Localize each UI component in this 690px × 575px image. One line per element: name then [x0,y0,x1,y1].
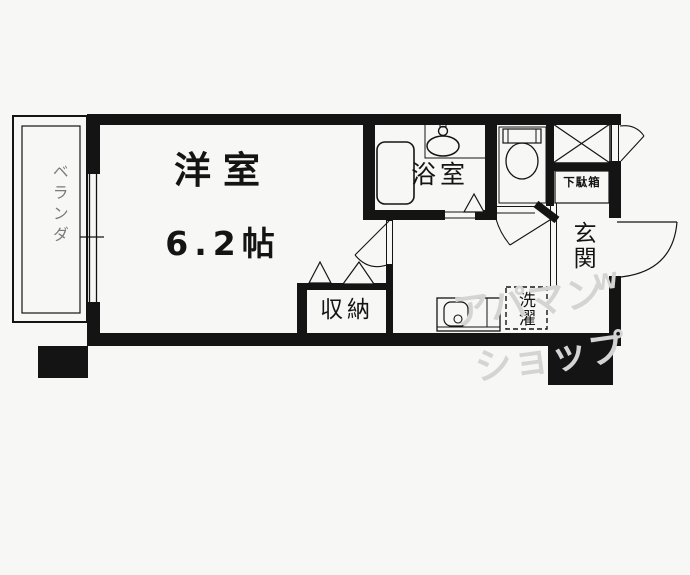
entrance-door [617,222,677,277]
wall-diagonal [536,204,557,220]
closet-door-marker-1 [309,262,331,283]
washbasin-icon [427,136,459,156]
wall-right-corner [609,114,621,125]
meter-box-door-leaf [621,136,644,161]
main-room-label: 洋室 [132,152,302,191]
room-door [355,221,393,267]
wall-right-lower [609,276,621,346]
toilet-door [496,218,553,245]
closet-label: 収納 [303,298,387,322]
folding-door-markers [309,194,484,284]
wall-meterbox-bottom [553,163,609,171]
meter-box-door [612,125,645,161]
bathroom-door-marker [464,194,484,212]
pillar-bottom-left [38,346,88,378]
wall-bathroom-bottom-a [363,210,445,220]
wall-right-mid [609,161,621,218]
wall-left-upper [87,125,100,174]
toilet-door-leaf [510,218,553,245]
wall-bathroom-left [363,125,375,220]
wall-closet-right [386,265,393,335]
meter-box [553,124,610,163]
shoe-cabinet-label: 下駄箱 [555,176,609,188]
wall-left-lower [87,302,100,334]
meter-box-door-arc [620,126,644,136]
toilet-door-arc [496,219,510,245]
window-icon [80,174,104,302]
veranda-label: ベランダ [50,163,67,247]
laundry-label: 洗濯 [515,291,533,327]
entrance-door-arc [621,222,677,277]
entrance-label: 玄関 [570,221,594,271]
wall-bath-toilet [485,125,497,215]
toilet-bowl-icon [506,143,538,179]
bathroom-label: 浴室 [398,162,478,188]
faucet-icon [439,127,448,136]
room-door-leaf [355,221,389,255]
wall-bottom [87,333,613,346]
room-door-closed-leaf [387,221,393,265]
toilet-room [497,127,546,213]
toilet-tank-icon [503,129,541,143]
pillar-bottom-right [548,346,613,385]
wall-top [87,114,621,125]
kitchen-counter [437,298,500,331]
floorplan-canvas: 洋室 6.2帖 浴室 収納 下駄箱 玄関 洗濯 ベランダ アパマン ショップ W [0,0,690,575]
main-room-size: 6.2帖 [120,227,320,262]
floorplan-drawing [0,0,690,575]
